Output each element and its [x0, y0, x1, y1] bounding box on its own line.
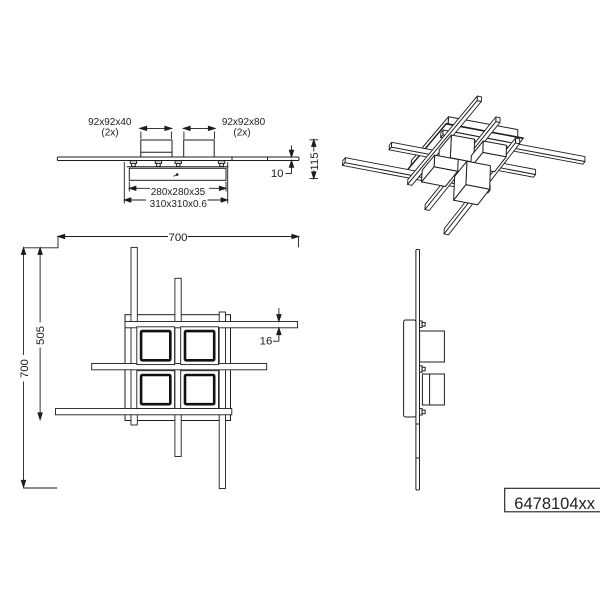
svg-text:16: 16: [260, 336, 273, 348]
svg-text:700: 700: [19, 359, 31, 378]
svg-text:700: 700: [168, 232, 187, 244]
svg-text:10: 10: [271, 168, 284, 180]
svg-text:280x280x35: 280x280x35: [151, 187, 206, 198]
svg-text:310x310x0.6: 310x310x0.6: [150, 199, 208, 210]
svg-text:115: 115: [309, 152, 321, 170]
svg-text:6478104xx: 6478104xx: [514, 495, 595, 513]
svg-text:(2x): (2x): [101, 127, 118, 138]
svg-text:(2x): (2x): [233, 127, 250, 138]
svg-text:505: 505: [35, 326, 47, 345]
